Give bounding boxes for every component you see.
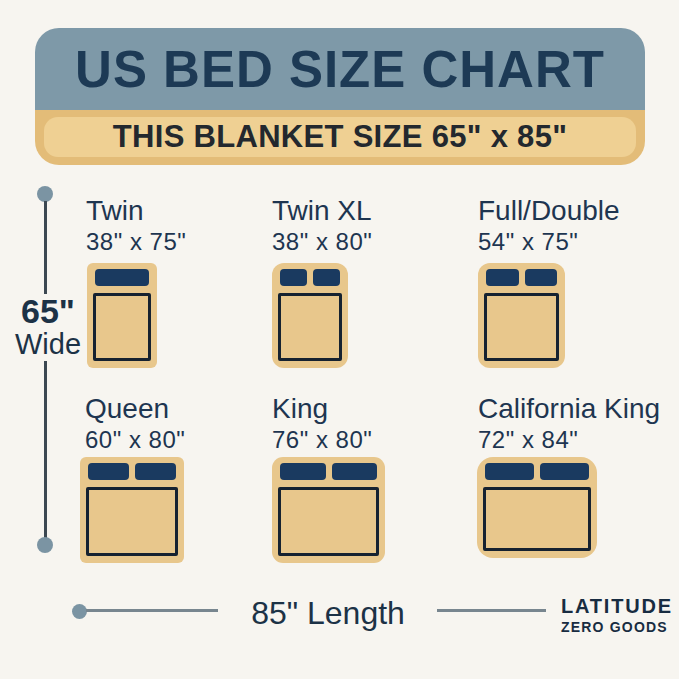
pillow-icon [88, 463, 129, 480]
bed-name-label: King [272, 394, 372, 424]
bed-size-chart-poster: US BED SIZE CHART THIS BLANKET SIZE 65" … [0, 0, 679, 679]
length-dim-left-dot-icon [72, 604, 87, 619]
bed-size-label: 38" x 75" [86, 229, 186, 255]
mattress-outline-icon [93, 293, 151, 361]
brand-name-text: LATITUDE [561, 595, 673, 617]
bed-name-label: Twin [86, 196, 186, 226]
length-dim-line-right [437, 609, 546, 612]
bed-cell-full-double: Full/Double 54" x 75" [478, 196, 620, 255]
bed-size-label: 60" x 80" [85, 427, 185, 453]
width-dim-line-upper [44, 201, 47, 294]
pillow-icon [525, 269, 558, 286]
mattress-outline-icon [278, 487, 379, 556]
bed-cell-twin-xl: Twin XL 38" x 80" [272, 196, 372, 255]
mattress-outline-icon [86, 487, 178, 556]
pillow-icon [486, 269, 519, 286]
bed-name-label: Queen [85, 394, 185, 424]
blanket-icon [272, 457, 385, 563]
width-dim-label: 65" Wide [9, 294, 87, 360]
pillow-icon [135, 463, 176, 480]
blanket-icon [272, 263, 348, 368]
pillow-icon [280, 463, 326, 480]
bed-size-label: 38" x 80" [272, 229, 372, 255]
mattress-outline-icon [278, 293, 342, 361]
pillow-icon [280, 269, 307, 286]
page-title: US BED SIZE CHART [75, 40, 605, 99]
width-value-text: 65" [9, 294, 87, 329]
bed-size-label: 54" x 75" [478, 229, 620, 255]
bed-cell-queen: Queen 60" x 80" [85, 394, 185, 453]
pillow-icon [540, 463, 589, 480]
blanket-icon [87, 263, 157, 368]
width-dim-top-dot-icon [37, 186, 53, 202]
pillow-icon [95, 269, 149, 286]
blanket-icon [477, 457, 597, 558]
pillow-icon [313, 269, 340, 286]
length-dim-line-left [86, 609, 218, 612]
header-banner: US BED SIZE CHART THIS BLANKET SIZE 65" … [35, 28, 645, 165]
brand-logo: LATITUDE ZERO GOODS [561, 595, 673, 636]
bed-size-label: 72" x 84" [478, 427, 660, 453]
bed-cell-twin: Twin 38" x 75" [86, 196, 186, 255]
blanket-size-text: THIS BLANKET SIZE 65" x 85" [113, 119, 567, 155]
pillow-icon [485, 463, 534, 480]
pillow-icon [332, 463, 378, 480]
brand-subname-text: ZERO GOODS [561, 619, 673, 636]
chart-title-banner: US BED SIZE CHART [35, 28, 645, 110]
width-dim-line-lower [44, 361, 47, 539]
bed-cell-california-king: California King 72" x 84" [478, 394, 660, 453]
bed-size-label: 76" x 80" [272, 427, 372, 453]
bed-name-label: California King [478, 394, 660, 424]
mattress-outline-icon [484, 293, 559, 361]
blanket-icon [478, 263, 565, 368]
blanket-size-banner: THIS BLANKET SIZE 65" x 85" [35, 110, 645, 165]
blanket-icon [80, 457, 184, 563]
length-dim-label: 85" Length [226, 595, 430, 632]
width-word-text: Wide [9, 329, 87, 360]
blanket-size-banner-inner: THIS BLANKET SIZE 65" x 85" [44, 117, 636, 157]
bed-name-label: Twin XL [272, 196, 372, 226]
mattress-outline-icon [483, 487, 591, 551]
bed-name-label: Full/Double [478, 196, 620, 226]
bed-cell-king: King 76" x 80" [272, 394, 372, 453]
width-dim-bottom-dot-icon [37, 537, 53, 553]
